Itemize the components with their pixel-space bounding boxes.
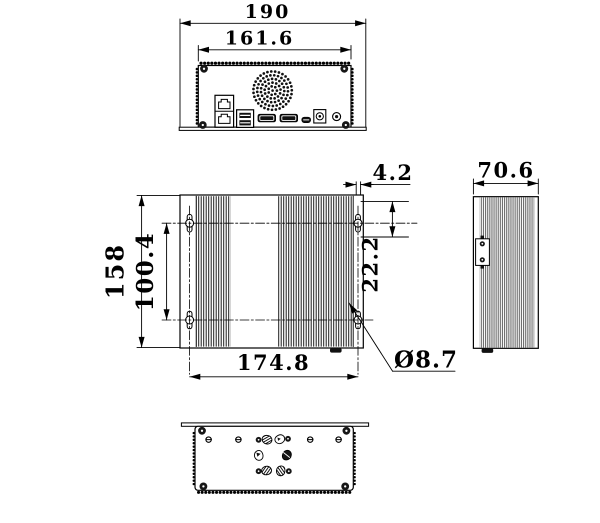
bottom-body xyxy=(195,426,353,490)
top-view: 158 100.4 174.8 4.2 22.2 Ø8.7 xyxy=(101,160,459,377)
fins-left xyxy=(196,196,231,346)
foot xyxy=(330,348,342,353)
dim-label-hole-diameter: Ø8.7 xyxy=(394,347,458,374)
fins-right xyxy=(277,196,353,346)
dim-label-mount-inset: 22.2 xyxy=(358,235,383,292)
dim-label-mount-spacing-h: 174.8 xyxy=(237,350,310,375)
corner-screw xyxy=(198,427,206,435)
mounting-flange xyxy=(179,127,366,130)
drawing-canvas: 190 161.6 xyxy=(0,0,600,523)
dimension-drawing: 190 161.6 xyxy=(0,0,600,523)
corner-screw xyxy=(342,121,350,129)
corner-screw xyxy=(341,483,349,491)
usb-ports xyxy=(237,110,254,128)
corner-screw xyxy=(199,121,207,129)
side-view: 70.6 xyxy=(473,158,538,353)
corner-screw xyxy=(343,427,351,435)
dim-label-slot-width: 4.2 xyxy=(372,160,413,185)
bottom-view xyxy=(181,423,368,493)
dim-label-rear-body-width: 161.6 xyxy=(225,28,295,50)
hdmi-port-1 xyxy=(258,114,276,122)
hdmi-port-2 xyxy=(280,114,298,122)
audio-jack xyxy=(333,113,341,121)
dim-label-depth: 158 xyxy=(101,243,130,299)
corner-screw xyxy=(340,65,348,73)
dim-label-mount-spacing-v: 100.4 xyxy=(132,232,159,312)
dim-label-side-width: 70.6 xyxy=(477,158,534,183)
rear-view: 190 161.6 xyxy=(179,1,366,130)
micro-usb-port xyxy=(302,117,311,122)
dc-power-jack xyxy=(314,110,326,123)
corner-screw xyxy=(200,483,208,491)
dim-mount-inset xyxy=(361,201,409,237)
side-connector xyxy=(476,236,490,269)
corner-screw xyxy=(200,65,208,73)
foot xyxy=(482,348,494,353)
ethernet-ports xyxy=(215,95,234,127)
side-fins xyxy=(480,197,535,347)
dim-label-rear-overall-width: 190 xyxy=(245,1,291,23)
